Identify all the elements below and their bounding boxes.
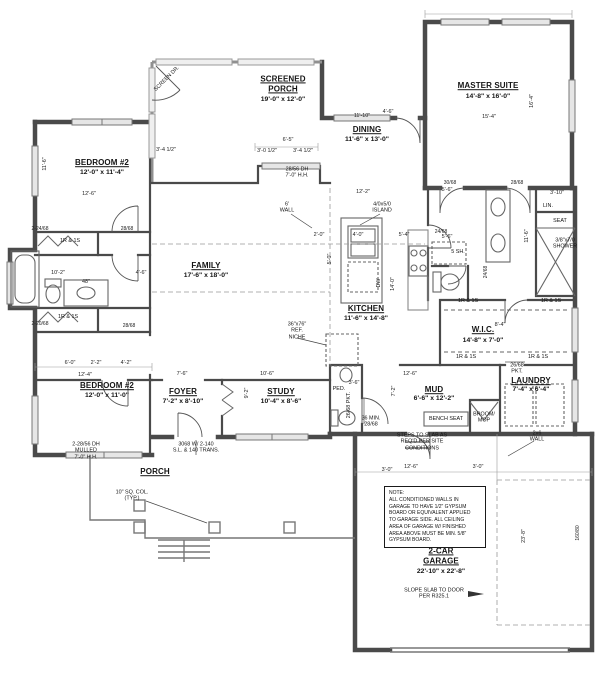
- room-screened-porch-dims: 19'-0" x 12'-0": [261, 96, 305, 104]
- dim-label: 3'-6": [349, 380, 360, 386]
- slope-arrow: [468, 591, 484, 597]
- room-kitchen: KITCHEN: [348, 304, 384, 314]
- garage-note: NOTE: ALL CONDITIONED WALLS IN GARAGE TO…: [384, 486, 486, 548]
- dim-label: 5'-6": [442, 187, 453, 193]
- room-bedroom2-bottom: BEDROOM #2: [80, 381, 134, 391]
- dim-label: 4'-6": [136, 270, 147, 276]
- room-wic-dims: 14'-8" x 7'-0": [463, 337, 504, 345]
- room-bedroom2-bottom-dims: 12'-0" x 11'-0": [85, 392, 129, 400]
- dim-label: 4'-6": [383, 109, 394, 115]
- shelf-rod-label: 1R & 1S: [456, 354, 476, 360]
- garage-door-panel: [390, 648, 570, 652]
- dishwasher-label: DW: [376, 279, 382, 288]
- toilet-hall-tank: [45, 279, 61, 287]
- dim-label: 10'-6": [260, 371, 274, 377]
- room-study: STUDY: [267, 387, 295, 397]
- dim-label: 5'-6": [442, 234, 453, 240]
- linen-label: LIN.: [543, 203, 553, 209]
- dim-label: 12'-2": [356, 189, 370, 195]
- dim-label: 9'-2": [244, 388, 250, 399]
- toilet-powder-tank: [331, 410, 338, 426]
- dim-label: 3'-4 1/2": [156, 147, 176, 153]
- dim-label: 11'-6": [42, 157, 48, 170]
- mulled-window-label: 2-28/56 DH MULLED 7'-0" H.H.: [72, 441, 100, 460]
- room-kitchen-dims: 11'-6" x 14'-8": [344, 315, 388, 323]
- door-size-label: 28/68: [511, 180, 524, 186]
- dim-label: 12'-4": [78, 372, 92, 378]
- wall-2x6-label: 2x6 WALL: [530, 431, 544, 444]
- dim-label: 2'-2": [91, 360, 102, 366]
- room-master-dims: 14'-8" x 16'-0": [466, 93, 510, 101]
- broom-mop-label: BROOM/ MOP: [473, 412, 495, 425]
- room-dining-dims: 11'-6" x 13'-0": [345, 136, 389, 144]
- room-porch: PORCH: [140, 467, 169, 477]
- room-foyer-dims: 7'-2" x 8'-10": [163, 398, 204, 406]
- dim-label: 8'-4": [495, 322, 506, 328]
- porch-steps: [158, 540, 210, 562]
- dim-label: 11'-10": [354, 113, 370, 119]
- hall-sink: [77, 287, 95, 299]
- dim-label: 3'-10": [550, 190, 564, 196]
- dim-label: 23'-8": [521, 529, 527, 543]
- shower-seat-label: SEAT: [553, 218, 567, 224]
- bench-seat-label: BENCH SEAT: [429, 416, 463, 422]
- pocket-door-label: 26/68 PKT.: [510, 363, 524, 376]
- refrigerator: [326, 334, 358, 366]
- shelf-rod-label: 1R & 1S: [528, 354, 548, 360]
- dim-label: 12'-6": [82, 191, 96, 197]
- toilet-master-tank: [433, 272, 441, 292]
- closet-door-label: 2-24/68: [32, 226, 49, 232]
- porch-window-label: 28/56 DH 7'-0" H.H.: [285, 167, 308, 180]
- dim-label: 5'-0": [327, 254, 333, 265]
- dim-label: 12'-6": [404, 464, 418, 470]
- pedestal-label: PED.: [333, 386, 346, 392]
- shelf-rod-label: 1R & 1S: [458, 298, 478, 304]
- room-bedroom2-top: BEDROOM #2: [75, 158, 129, 168]
- room-study-dims: 10'-4" x 8'-6": [261, 398, 302, 406]
- room-dining: DINING: [353, 125, 382, 135]
- porch-column: [209, 522, 220, 533]
- garage-door-label: 160/80: [575, 525, 581, 540]
- room-laundry-dims: 7'-4" x 6'-4": [513, 386, 550, 394]
- dim-label: 48": [82, 279, 90, 285]
- dim-label: 3'-0": [473, 464, 484, 470]
- room-screened-porch: SCREENED PORCH: [260, 74, 305, 93]
- dim-label: 11'-6": [524, 229, 530, 242]
- toilet-hall-bowl: [46, 285, 60, 303]
- min-door-label: 36 MIN. 28/68: [362, 416, 381, 429]
- dim-label: 4'-0": [353, 232, 364, 238]
- dim-label: 12'-6": [403, 371, 417, 377]
- room-garage-dims: 22'-10" x 22'-8": [417, 568, 465, 576]
- dim-label: 3'-4 1/2": [293, 148, 313, 154]
- porch-column: [284, 522, 295, 533]
- dim-label: 6'-5": [283, 137, 294, 143]
- room-foyer: FOYER: [169, 387, 197, 397]
- dishwasher: [348, 262, 378, 292]
- shelf-rod-label: 1R & 1S: [60, 238, 80, 244]
- dim-label: 4'-2": [121, 360, 132, 366]
- master-vanity: [486, 190, 510, 262]
- island: [341, 218, 382, 303]
- room-wic: W.I.C.: [472, 325, 494, 335]
- front-door-label: 3068 W/ 2-140 S.L. & 140 TRANS.: [173, 442, 219, 455]
- ref-niche-label: 36"x76" REF. NICHE: [288, 321, 307, 340]
- room-family: FAMILY: [191, 261, 220, 271]
- door-size-label: 30/68: [444, 180, 457, 186]
- room-garage: 2-CAR GARAGE: [423, 546, 459, 565]
- ceiling-dashes: [152, 188, 590, 625]
- dim-label: 7'-2": [391, 386, 397, 397]
- steps-note: STEPS TO SLAB AS REQ'D PER SITE CONDITIO…: [397, 432, 447, 451]
- dim-label: 2'-0": [314, 232, 325, 238]
- dim-label: 14'-0": [390, 277, 396, 291]
- shelf-rod-label: 1R & 1S: [541, 298, 561, 304]
- door-size-label: 28/68: [123, 323, 136, 329]
- room-family-dims: 17'-6" x 18'-0": [184, 272, 228, 280]
- dim-label: 15'-4": [482, 114, 496, 120]
- pocket-door-label-2: 26/68 PKT.: [346, 392, 352, 418]
- dim-label: 5'-4": [399, 232, 410, 238]
- room-bedroom2-top-dims: 12'-0" x 11'-4": [80, 169, 124, 177]
- porch-column: [134, 522, 145, 533]
- shower-label: 3/8"x7/0 SHOWER: [553, 238, 577, 251]
- half-wall-label: 6' WALL: [280, 202, 294, 215]
- island-label: 4/0x5/0 ISLAND: [372, 202, 391, 215]
- slope-note: SLOPE SLAB TO DOOR PER R325.1: [404, 588, 464, 601]
- room-master: MASTER SUITE: [458, 81, 519, 91]
- dim-label: 7'-6": [177, 371, 188, 377]
- dim-label: 6'-0": [65, 360, 76, 366]
- room-mud-dims: 6'-6" x 12'-2": [414, 395, 455, 403]
- dim-label: 16'-4": [529, 94, 535, 108]
- door-size-label: 24/68: [483, 266, 489, 279]
- room-mud: MUD: [425, 385, 444, 395]
- floor-plan: SCREENED PORCH 19'-0" x 12'-0" MASTER SU…: [0, 0, 606, 675]
- room-laundry: LAUNDRY: [511, 376, 551, 386]
- shelf-rod-label: 1R & 1S: [58, 314, 78, 320]
- dim-label: 10'-2": [51, 270, 65, 276]
- closet-door-label: 2-20/68: [32, 321, 49, 327]
- column-note: 10" SQ. COL. (TYP.): [116, 490, 149, 503]
- dim-label: 3'-0 1/2": [257, 148, 277, 154]
- wic-rods: [444, 310, 570, 352]
- study-french-doors: [222, 384, 233, 416]
- pantry-shelf-label: 5 SH.: [451, 249, 464, 255]
- dim-label: 3'-0": [382, 467, 393, 473]
- door-size-label: 28/68: [121, 226, 134, 232]
